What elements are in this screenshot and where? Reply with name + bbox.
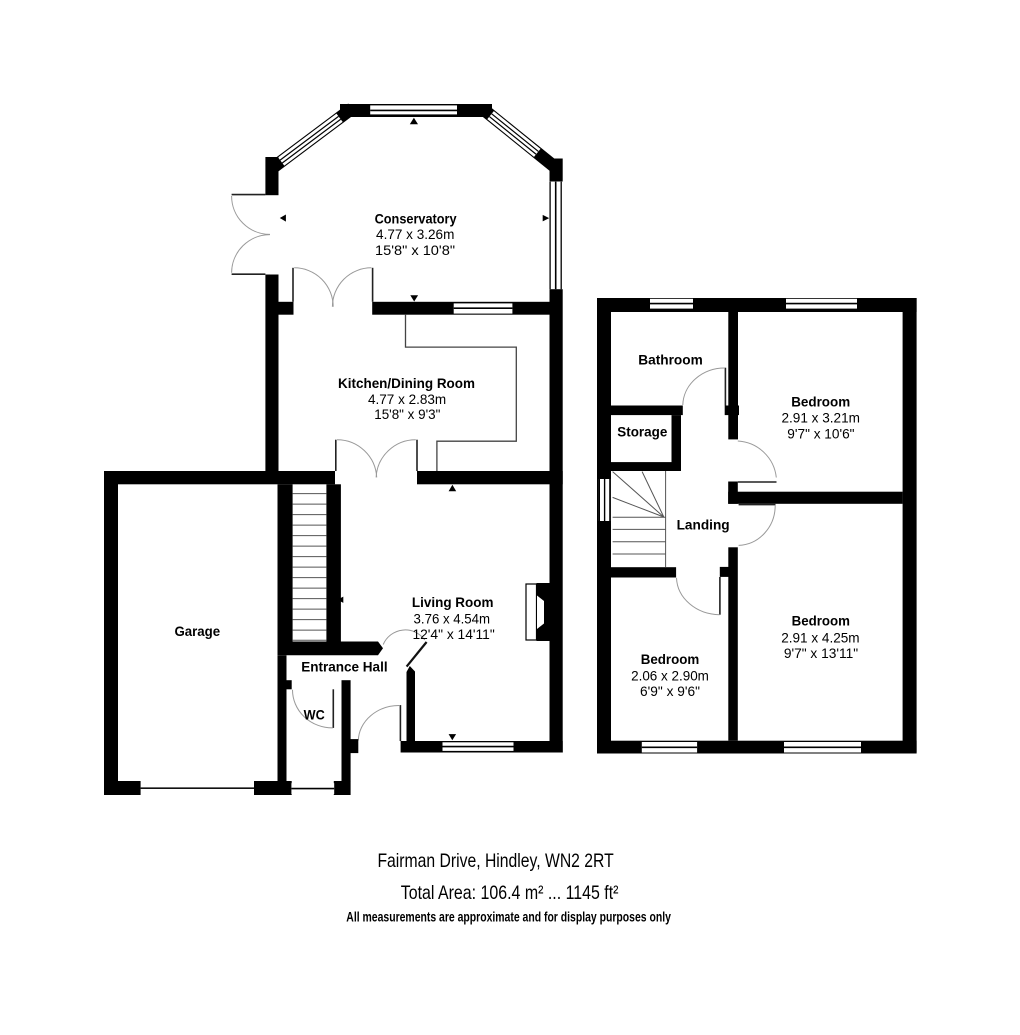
svg-text:Kitchen/Dining Room: Kitchen/Dining Room: [338, 375, 475, 391]
svg-text:Living Room: Living Room: [412, 594, 494, 610]
svg-text:15'8" x 10'8": 15'8" x 10'8": [375, 242, 455, 258]
svg-text:3.76 x 4.54m: 3.76 x 4.54m: [414, 611, 491, 627]
svg-text:Bedroom: Bedroom: [641, 651, 700, 667]
svg-text:2.91 x 4.25m: 2.91 x 4.25m: [781, 630, 859, 646]
svg-text:Bathroom: Bathroom: [638, 352, 703, 368]
svg-text:12'4" x 14'11": 12'4" x 14'11": [412, 626, 494, 642]
svg-text:15'8" x 9'3": 15'8" x 9'3": [374, 406, 440, 422]
svg-text:Landing: Landing: [677, 517, 730, 533]
svg-text:Bedroom: Bedroom: [792, 613, 850, 629]
svg-text:Bedroom: Bedroom: [791, 394, 850, 410]
svg-text:Storage: Storage: [617, 424, 667, 440]
svg-text:4.77 x 3.26m: 4.77 x 3.26m: [376, 226, 454, 242]
svg-text:All measurements are approxima: All measurements are approximate and for…: [346, 910, 671, 925]
svg-text:Total Area: 106.4 m² ... 1145: Total Area: 106.4 m² ... 1145 ft²: [401, 882, 619, 904]
svg-text:9'7" x 10'6": 9'7" x 10'6": [787, 426, 854, 442]
svg-text:2.06 x 2.90m: 2.06 x 2.90m: [631, 668, 709, 684]
svg-text:Conservatory: Conservatory: [375, 211, 457, 227]
svg-text:Fairman Drive, Hindley, WN2 2R: Fairman Drive, Hindley, WN2 2RT: [377, 850, 613, 872]
svg-text:WC: WC: [304, 707, 325, 723]
svg-text:9'7" x 13'11": 9'7" x 13'11": [784, 645, 858, 661]
svg-text:Entrance Hall: Entrance Hall: [301, 658, 387, 674]
svg-text:4.77 x 2.83m: 4.77 x 2.83m: [368, 391, 446, 407]
svg-text:6'9" x 9'6": 6'9" x 9'6": [640, 683, 700, 699]
svg-text:2.91 x 3.21m: 2.91 x 3.21m: [781, 409, 860, 425]
svg-text:Garage: Garage: [174, 623, 220, 639]
